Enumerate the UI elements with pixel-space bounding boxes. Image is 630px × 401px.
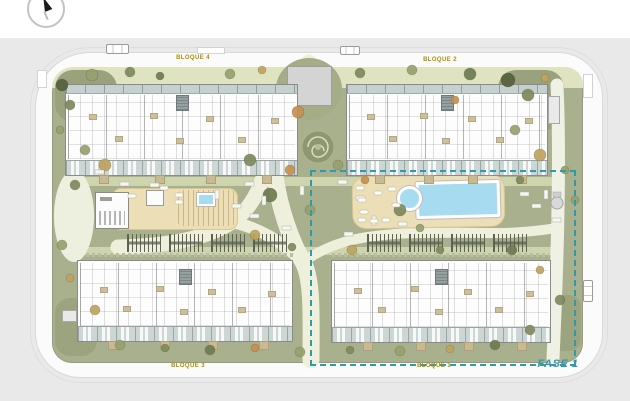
fase-1-boundary <box>310 170 576 366</box>
block-1-label: BLOQUE 1 <box>404 363 464 369</box>
car-icon <box>106 44 129 54</box>
top-toolbar <box>0 0 630 38</box>
block-2-label: BLOQUE 2 <box>410 57 470 63</box>
parking-bay <box>583 74 593 98</box>
site-plan-canvas: FASE 1 BLOQUE 4 BLOQUE 2 BLOQUE 3 BLOQUE… <box>0 0 630 401</box>
fase-1-label: FASE 1 <box>528 358 588 370</box>
plan-sheet: FASE 1 BLOQUE 4 BLOQUE 2 BLOQUE 3 BLOQUE… <box>0 38 630 401</box>
compass-tail <box>43 11 48 20</box>
parking-bay <box>37 70 47 88</box>
car-icon <box>583 280 593 302</box>
car-icon <box>340 46 360 55</box>
block-3-label: BLOQUE 3 <box>158 363 218 369</box>
compass-needle <box>40 0 53 12</box>
crosswalk-mark <box>197 47 225 54</box>
block-4-label: BLOQUE 4 <box>163 55 223 61</box>
